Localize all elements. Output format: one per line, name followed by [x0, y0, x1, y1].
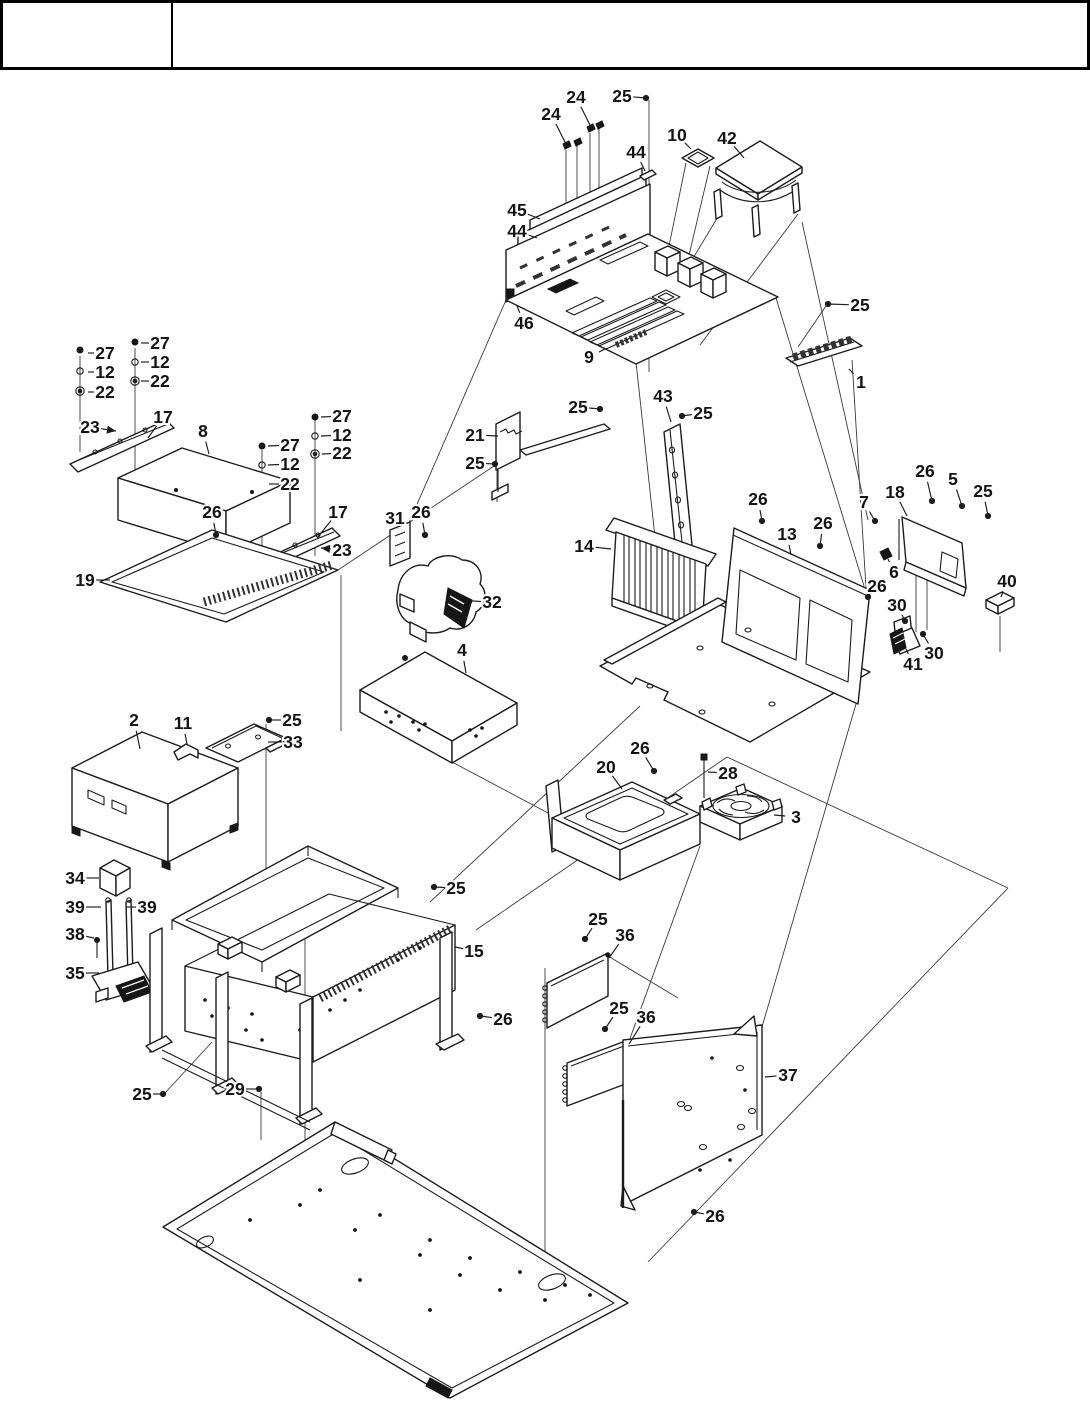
- screw-dot: [213, 532, 219, 538]
- callout-label: 17: [328, 502, 347, 522]
- callout-45: 45: [507, 200, 540, 220]
- screw-dot: [985, 513, 991, 519]
- callout-12: 12: [88, 362, 115, 382]
- callout-label: 26: [748, 489, 768, 509]
- callout-label: 3: [791, 807, 801, 827]
- screw-27: [132, 339, 138, 345]
- screw-dot: [929, 498, 935, 504]
- power-supply: [72, 732, 238, 870]
- chassis-front-right-wall: [313, 925, 455, 1062]
- callout-label: 18: [885, 482, 905, 502]
- callout-label: 26: [867, 576, 887, 596]
- chassis-leg: [300, 998, 312, 1124]
- callout-25: 25: [266, 710, 302, 730]
- callout-38: 38: [65, 924, 94, 944]
- callout-label: 45: [507, 200, 527, 220]
- callout-label: 36: [636, 1007, 656, 1027]
- callout-label: 17: [153, 407, 172, 427]
- callout-label: 41: [903, 654, 923, 674]
- callout-21: 21: [465, 425, 498, 445]
- callout-label: 12: [95, 362, 115, 382]
- callout-label: 28: [718, 763, 738, 783]
- callout-label: 1: [856, 372, 866, 392]
- screw-28: [701, 754, 707, 760]
- exploded-diagram: 2424254410424544469251254325212514261326…: [0, 0, 1090, 1405]
- callout-25: 25: [568, 397, 603, 417]
- callout-27: 27: [88, 343, 115, 363]
- callout-11: 11: [174, 713, 193, 744]
- callout-22: 22: [141, 371, 170, 391]
- callout-label: 27: [332, 406, 351, 426]
- callout-25: 25: [431, 878, 466, 898]
- screw-dot: [477, 1013, 483, 1019]
- callout-14: 14: [574, 536, 611, 556]
- callout-label: 14: [574, 536, 594, 556]
- leader-line: [581, 107, 592, 129]
- callout-label: 25: [609, 998, 629, 1018]
- callout-25: 25: [973, 481, 993, 519]
- callout-label: 32: [482, 592, 502, 612]
- callout-label: 26: [411, 502, 431, 522]
- callout-31: 31: [385, 508, 405, 529]
- callout-22: 22: [88, 382, 115, 402]
- callout-34: 34: [65, 868, 99, 888]
- callout-15: 15: [455, 941, 484, 961]
- callout-27: 27: [321, 406, 352, 426]
- callout-28: 28: [708, 763, 738, 783]
- screw: [403, 656, 408, 661]
- callout-label: 7: [859, 492, 869, 512]
- callout-26: 26: [865, 576, 887, 600]
- callout-label: 26: [630, 738, 650, 758]
- callout-label: 38: [65, 924, 85, 944]
- callout-label: 46: [514, 313, 534, 333]
- cpu: [682, 149, 714, 167]
- screw-dot: [160, 1091, 166, 1097]
- callout-label: 2: [129, 710, 139, 730]
- leader-line: [268, 445, 279, 446]
- leader-line: [765, 1076, 777, 1077]
- callout-label: 44: [507, 221, 527, 241]
- callout-25: 25: [602, 998, 629, 1032]
- chassis-leg: [216, 972, 228, 1094]
- leader-line: [556, 124, 567, 146]
- screw-dot: [817, 543, 823, 549]
- leader-line: [595, 547, 611, 549]
- screw-dot: [422, 532, 428, 538]
- callout-label: 25: [612, 86, 632, 106]
- callout-label: 24: [566, 87, 586, 107]
- screw-27: [259, 443, 265, 449]
- callout-label: 36: [615, 925, 635, 945]
- heatsink-leg: [752, 205, 760, 237]
- screw-dot: [825, 301, 831, 307]
- speaker-kit: [92, 860, 152, 1002]
- screw-dot: [431, 884, 437, 890]
- callout-label: 23: [332, 540, 352, 560]
- callout-5: 5: [948, 469, 965, 509]
- callout-label: 25: [693, 403, 713, 423]
- callout-1: 1: [849, 369, 866, 392]
- support-bracket: [492, 412, 610, 500]
- callout-label: 22: [150, 371, 170, 391]
- callout-12: 12: [141, 352, 170, 372]
- callout-25: 25: [465, 453, 498, 473]
- rear-plate-assembly: [880, 517, 1014, 654]
- callout-label: 12: [332, 425, 352, 445]
- callout-42: 42: [717, 128, 744, 158]
- callout-label: 26: [813, 513, 833, 533]
- leader-line: [666, 407, 671, 422]
- screw-dot: [920, 631, 926, 637]
- callout-18: 18: [885, 482, 907, 516]
- callout-label: 30: [924, 643, 944, 663]
- screw-dot: [597, 406, 603, 412]
- callout-label: 25: [132, 1084, 152, 1104]
- callout-label: 12: [280, 454, 300, 474]
- callout-25: 25: [132, 1084, 166, 1104]
- memory-module: [786, 338, 862, 366]
- callout-label: 40: [997, 571, 1017, 591]
- heatsink: [714, 141, 802, 237]
- chassis-top-ring: [172, 846, 398, 962]
- callout-9: 9: [584, 347, 605, 367]
- fan-duct: [546, 780, 700, 880]
- callout-label: 6: [889, 562, 899, 582]
- screw-27: [77, 347, 83, 353]
- leader-line: [86, 936, 94, 938]
- callout-label: 26: [493, 1009, 513, 1029]
- rod-39: [106, 900, 113, 978]
- callout-label: 25: [282, 710, 302, 730]
- callout-36: 36: [609, 925, 635, 958]
- leader-line: [455, 947, 463, 949]
- screw-dot: [492, 461, 498, 467]
- callout-26: 26: [813, 513, 833, 549]
- callout-25: 25: [582, 909, 608, 942]
- heatsink-leg: [792, 183, 800, 213]
- chassis-leg: [150, 928, 162, 1052]
- callout-10: 10: [667, 125, 691, 149]
- callout-label: 33: [283, 732, 303, 752]
- callout-label: 25: [588, 909, 608, 929]
- screw-dot: [759, 518, 765, 524]
- screw-dot: [643, 95, 649, 101]
- leader-line: [828, 304, 849, 305]
- screw-dot: [959, 503, 965, 509]
- callout-12: 12: [268, 454, 300, 474]
- callout-30: 30: [920, 631, 944, 663]
- callout-24: 24: [566, 87, 592, 129]
- callout-label: 10: [667, 125, 687, 145]
- callout-label: 44: [626, 142, 646, 162]
- callout-label: 20: [596, 757, 616, 777]
- screw-24: [574, 138, 582, 146]
- bracket-33: [206, 724, 286, 762]
- callout-label: 11: [174, 713, 193, 733]
- screw-27: [312, 414, 318, 420]
- callout-label: 19: [75, 570, 95, 590]
- callout-label: 22: [95, 382, 115, 402]
- leader-line: [185, 734, 187, 744]
- leader-line: [612, 776, 622, 789]
- callout-label: 23: [80, 417, 100, 437]
- callout-label: 25: [973, 481, 993, 501]
- callout-12: 12: [321, 425, 352, 445]
- callout-label: 21: [465, 425, 485, 445]
- callout-37: 37: [765, 1065, 798, 1085]
- option-board-1: [543, 953, 610, 1028]
- callout-39: 39: [65, 897, 101, 917]
- callout-label: 37: [778, 1065, 797, 1085]
- callout-26: 26: [411, 502, 431, 538]
- callout-label: 29: [225, 1079, 245, 1099]
- screw-dot: [602, 1026, 608, 1032]
- callout-label: 39: [65, 897, 85, 917]
- option-board-2: [563, 1040, 630, 1106]
- callout-label: 30: [887, 595, 907, 615]
- callout-25: 25: [679, 403, 713, 423]
- callout-label: 13: [777, 524, 797, 544]
- leader-line: [464, 661, 466, 673]
- screw-6: [880, 548, 892, 560]
- callout-label: 22: [332, 443, 352, 463]
- callout-23: 23: [80, 417, 116, 437]
- callout-43: 43: [653, 386, 673, 422]
- callout-27: 27: [268, 435, 300, 455]
- leader-line: [599, 349, 605, 352]
- callout-label: 27: [95, 343, 114, 363]
- callout-label: 42: [717, 128, 737, 148]
- callout-20: 20: [596, 757, 622, 789]
- callout-27: 27: [141, 333, 170, 353]
- callout-26: 26: [915, 461, 935, 504]
- screw-dot: [872, 518, 878, 524]
- callout-label: 31: [385, 508, 405, 528]
- leader-line: [486, 435, 498, 436]
- callout-4: 4: [457, 640, 467, 673]
- screw-dot: [691, 1209, 697, 1215]
- callout-label: 26: [705, 1206, 725, 1226]
- callout-26: 26: [630, 738, 657, 774]
- callout-label: 12: [150, 352, 170, 372]
- chassis-leg: [440, 932, 452, 1050]
- callout-label: 22: [280, 474, 300, 494]
- callout-24: 24: [541, 104, 567, 146]
- arrowhead: [106, 426, 116, 434]
- bottom-panel: [163, 1122, 628, 1398]
- leader-line: [609, 944, 619, 958]
- screw-38: [95, 938, 100, 943]
- drive-4: [360, 652, 517, 763]
- callout-label: 35: [65, 963, 85, 983]
- callout-25: 25: [612, 86, 649, 106]
- callout-26: 26: [691, 1206, 725, 1226]
- callout-19: 19: [75, 570, 110, 590]
- callout-label: 8: [198, 421, 208, 441]
- callout-label: 4: [457, 640, 467, 660]
- callout-label: 24: [541, 104, 561, 124]
- screw-dot: [902, 618, 908, 624]
- callout-41: 41: [903, 649, 923, 674]
- leader-line: [268, 464, 279, 465]
- heatsink-leg: [714, 189, 722, 219]
- callout-label: 43: [653, 386, 673, 406]
- callout-6: 6: [888, 559, 899, 582]
- screw-dot: [679, 413, 685, 419]
- callout-22: 22: [322, 443, 352, 463]
- manual-page: 2424254410424544469251254325212514261326…: [0, 0, 1090, 1405]
- callout-26: 26: [477, 1009, 513, 1029]
- retention-bracket: [664, 424, 692, 553]
- callout-label: 9: [584, 347, 594, 367]
- leader-line: [206, 442, 209, 454]
- callout-label: 26: [202, 502, 222, 522]
- screw-dot: [256, 1086, 262, 1092]
- callout-label: 25: [465, 453, 485, 473]
- callout-label: 27: [150, 333, 169, 353]
- callout-label: 26: [915, 461, 935, 481]
- leader-line: [900, 502, 907, 516]
- callout-label: 15: [464, 941, 484, 961]
- screw-dot: [582, 936, 588, 942]
- callout-label: 39: [137, 897, 157, 917]
- callout-label: 25: [850, 295, 870, 315]
- callout-label: 34: [65, 868, 85, 888]
- callout-label: 25: [568, 397, 588, 417]
- callout-30: 30: [887, 595, 908, 624]
- callout-label: 25: [446, 878, 466, 898]
- callout-label: 27: [280, 435, 299, 455]
- side-panel-37: [621, 1016, 762, 1210]
- screw-dot: [651, 768, 657, 774]
- screw-24: [596, 121, 604, 129]
- callout-8: 8: [198, 421, 209, 454]
- callout-44: 44: [626, 142, 646, 171]
- callout-label: 5: [948, 469, 958, 489]
- arrowhead: [321, 545, 330, 553]
- callout-25: 25: [825, 295, 870, 315]
- screw-dot: [266, 717, 272, 723]
- callout-26: 26: [748, 489, 768, 524]
- speaker-assembly: [390, 522, 485, 642]
